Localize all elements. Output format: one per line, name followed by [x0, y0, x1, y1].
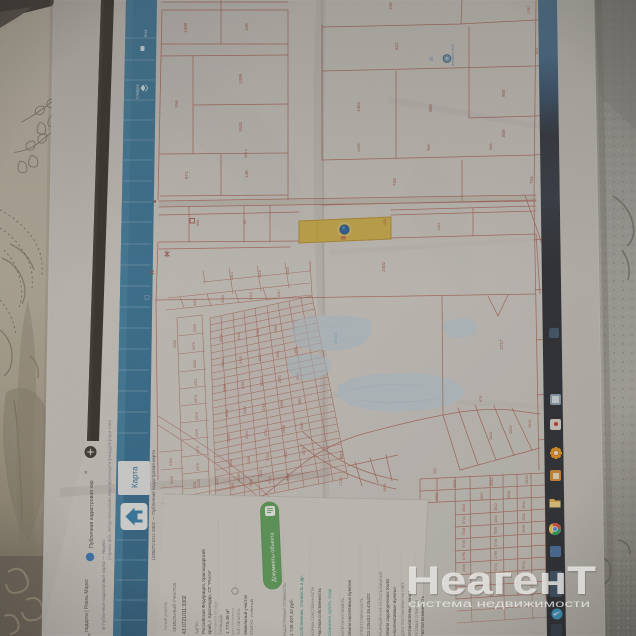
- svg-text:система недвижимости: система недвижимости: [408, 599, 590, 610]
- svg-text:НеагенТ: НеагенТ: [406, 559, 596, 603]
